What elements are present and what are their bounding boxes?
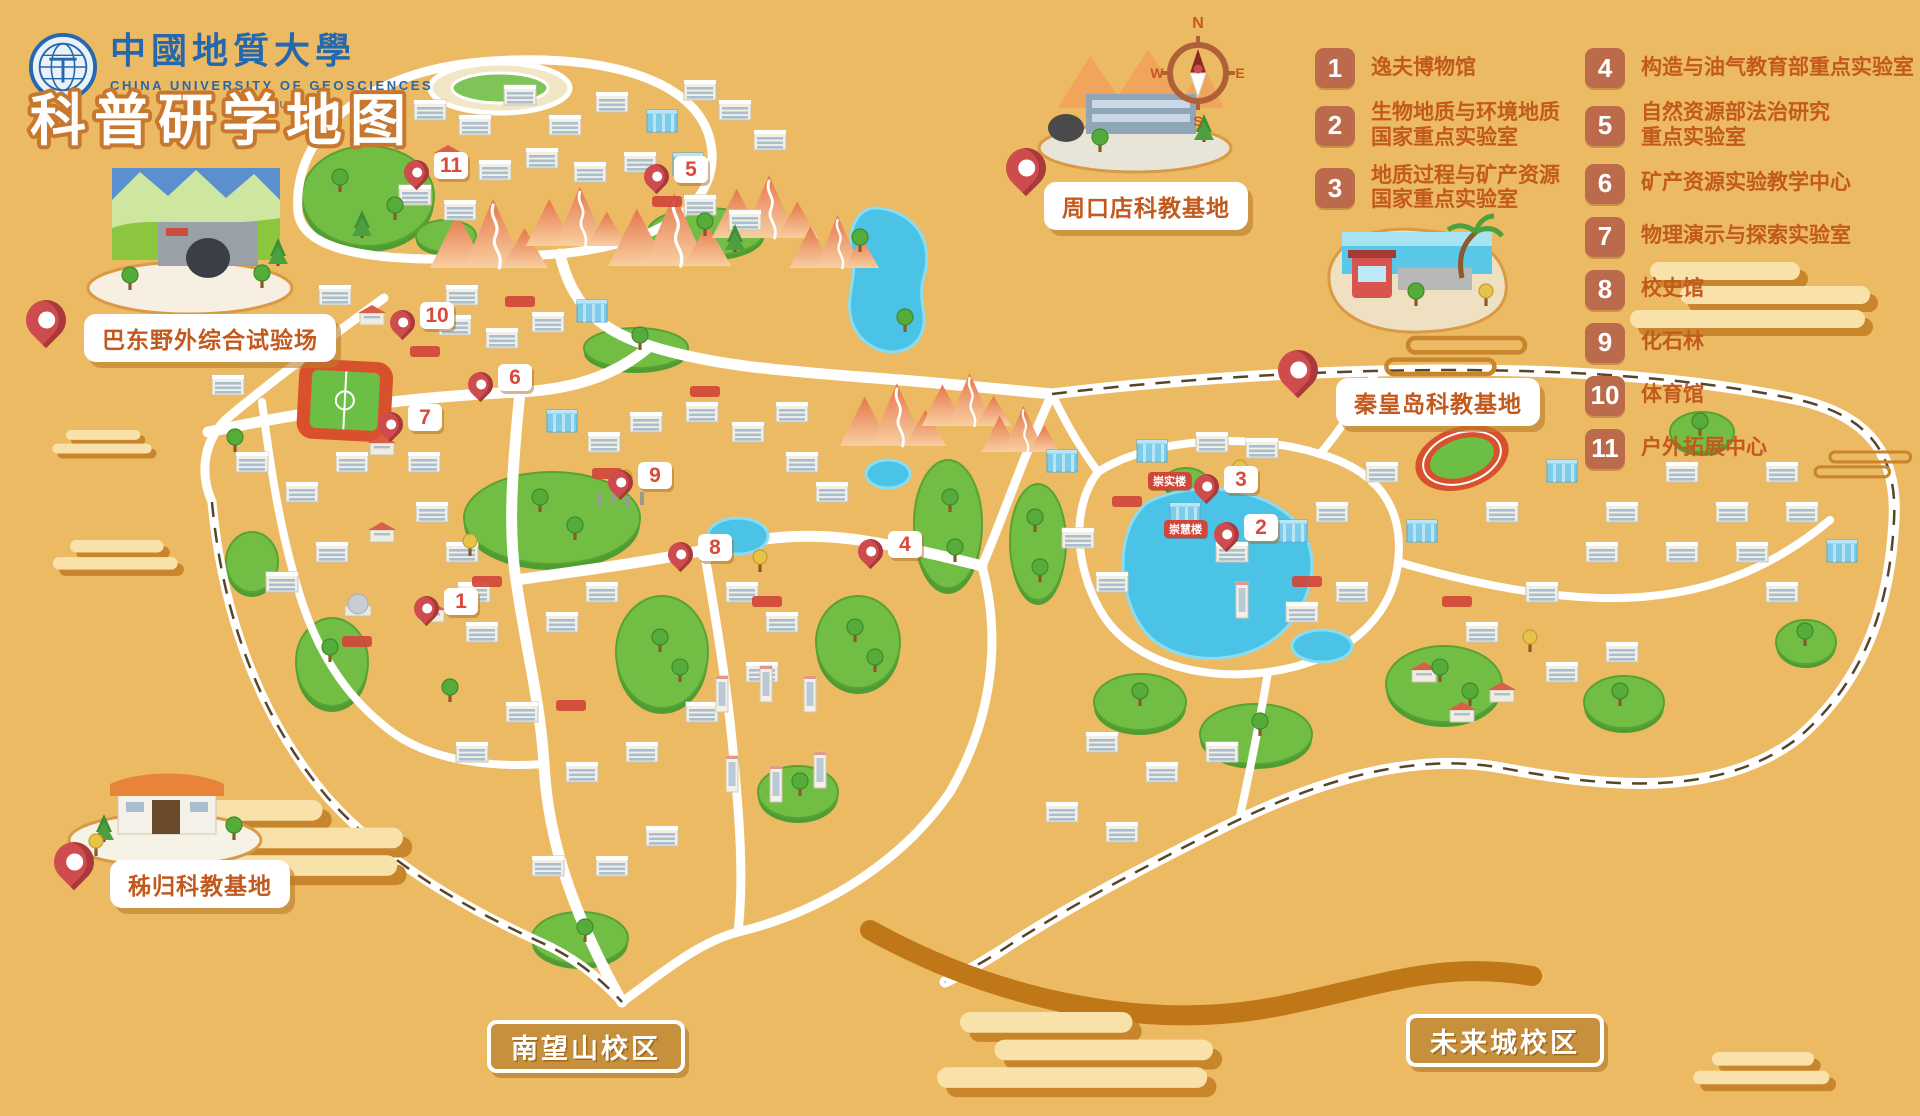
campus-label-nanwangshan[interactable]: 南望山校区 xyxy=(487,1020,685,1073)
marker-number: 8 xyxy=(698,534,732,561)
base-label-badong[interactable]: 巴东野外综合试验场 xyxy=(84,314,336,362)
poster-title: 科普研学地图 xyxy=(20,78,460,168)
legend-number-3: 3 xyxy=(1315,168,1355,208)
map-marker-6[interactable]: 6 xyxy=(468,364,532,402)
map-marker-9[interactable]: 9 xyxy=(608,462,672,500)
marker-pin-icon xyxy=(858,539,884,569)
marker-number: 9 xyxy=(638,462,672,489)
poster-title-text: 科普研学地图 xyxy=(30,89,414,152)
legend-label-9: 化石林 xyxy=(1641,330,1704,355)
map-marker-7[interactable]: 7 xyxy=(378,404,442,442)
zigui-illustration xyxy=(69,774,261,867)
legend-number-2: 2 xyxy=(1315,106,1355,146)
marker-pin-icon xyxy=(404,160,430,190)
legend-label-4: 构造与油气教育部重点实验室 xyxy=(1641,56,1914,81)
pin-icon xyxy=(1189,469,1224,504)
marker-pin-icon xyxy=(414,596,440,626)
pin-icon xyxy=(853,534,888,569)
map-marker-11[interactable]: 11 xyxy=(404,152,468,190)
marker-pin-icon xyxy=(1214,522,1240,552)
bottom-swoosh xyxy=(870,930,1532,1015)
legend-number-8: 8 xyxy=(1585,270,1625,310)
pin-icon xyxy=(385,305,420,340)
marker-number: 10 xyxy=(420,302,454,329)
legend-item-6: 6矿产资源实验教学中心 xyxy=(1585,164,1915,204)
legend-item-2: 2生物地质与环境地质 国家重点实验室 xyxy=(1315,101,1575,151)
compass-rose: N W E S xyxy=(1148,12,1248,130)
badong-illustration xyxy=(88,168,292,314)
marker-number: 6 xyxy=(498,364,532,391)
marker-number: 5 xyxy=(674,156,708,183)
university-name-zh: 中國地質大學 xyxy=(110,22,433,74)
pin-icon xyxy=(373,407,408,442)
legend-label-7: 物理演示与探索实验室 xyxy=(1641,224,1851,249)
legend-label-1: 逸夫博物馆 xyxy=(1371,56,1476,81)
legend-item-7: 7物理演示与探索实验室 xyxy=(1585,217,1915,257)
marker-number: 4 xyxy=(888,531,922,558)
legend-number-10: 10 xyxy=(1585,376,1625,416)
legend-number-9: 9 xyxy=(1585,323,1625,363)
pin-icon xyxy=(603,465,638,500)
pin-icon xyxy=(409,591,444,626)
legend-number-7: 7 xyxy=(1585,217,1625,257)
legend-item-3: 3地质过程与矿产资源 国家重点实验室 xyxy=(1315,164,1575,214)
marker-number: 1 xyxy=(444,588,478,615)
legend-label-3: 地质过程与矿产资源 国家重点实验室 xyxy=(1371,164,1560,214)
compass-s: S xyxy=(1193,113,1202,129)
building-tag-0: 崇实楼 xyxy=(1148,472,1191,490)
map-marker-4[interactable]: 4 xyxy=(858,531,922,569)
legend-number-6: 6 xyxy=(1585,164,1625,204)
legend-label-5: 自然资源部法治研究 重点实验室 xyxy=(1641,101,1830,151)
compass-n: N xyxy=(1192,15,1204,32)
marker-number: 11 xyxy=(434,152,468,179)
legend-label-2: 生物地质与环境地质 国家重点实验室 xyxy=(1371,101,1560,151)
map-marker-3[interactable]: 3 xyxy=(1194,466,1258,504)
marker-pin-icon xyxy=(644,164,670,194)
building-tag-1: 崇慧楼 xyxy=(1164,520,1207,538)
legend-number-11: 11 xyxy=(1585,429,1625,469)
marker-pin-icon xyxy=(378,412,404,442)
marker-pin-icon xyxy=(1194,474,1220,504)
qinhuangdao-illustration xyxy=(1329,216,1506,332)
map-marker-10[interactable]: 10 xyxy=(390,302,454,340)
legend-label-8: 校史馆 xyxy=(1641,277,1704,302)
legend-label-11: 户外拓展中心 xyxy=(1641,436,1767,461)
legend-item-9: 9化石林 xyxy=(1585,323,1915,363)
marker-number: 7 xyxy=(408,404,442,431)
legend-number-1: 1 xyxy=(1315,48,1355,88)
marker-number: 3 xyxy=(1224,466,1258,493)
legend-number-5: 5 xyxy=(1585,106,1625,146)
base-label-zhoukoudian[interactable]: 周口店科教基地 xyxy=(1044,182,1248,230)
legend-item-4: 4构造与油气教育部重点实验室 xyxy=(1585,48,1915,88)
marker-number: 2 xyxy=(1244,514,1278,541)
pin-icon xyxy=(663,537,698,572)
legend-item-8: 8校史馆 xyxy=(1585,270,1915,310)
legend-column-2: 4构造与油气教育部重点实验室5自然资源部法治研究 重点实验室6矿产资源实验教学中… xyxy=(1585,48,1915,482)
stadium-track xyxy=(1407,414,1517,503)
poster-map: 中國地質大學 CHINA UNIVERSITY OF GEOSCIENCES 武… xyxy=(0,0,1920,1116)
campus-label-weilaicheng[interactable]: 未来城校区 xyxy=(1406,1014,1604,1067)
map-marker-1[interactable]: 1 xyxy=(414,588,478,626)
pin-icon xyxy=(1209,517,1244,552)
pin-icon xyxy=(399,155,434,190)
legend-number-4: 4 xyxy=(1585,48,1625,88)
legend-label-6: 矿产资源实验教学中心 xyxy=(1641,171,1851,196)
base-label-qinhuangdao[interactable]: 秦皇岛科教基地 xyxy=(1336,378,1540,426)
map-marker-8[interactable]: 8 xyxy=(668,534,732,572)
legend-item-1: 1逸夫博物馆 xyxy=(1315,48,1575,88)
marker-pin-icon xyxy=(668,542,694,572)
marker-pin-icon xyxy=(468,372,494,402)
legend-column-1: 1逸夫博物馆2生物地质与环境地质 国家重点实验室3地质过程与矿产资源 国家重点实… xyxy=(1315,48,1575,226)
legend-item-10: 10体育馆 xyxy=(1585,376,1915,416)
base-label-zigui[interactable]: 秭归科教基地 xyxy=(110,860,290,908)
map-marker-2[interactable]: 2 xyxy=(1214,514,1278,552)
map-marker-5[interactable]: 5 xyxy=(644,156,708,194)
marker-pin-icon xyxy=(608,470,634,500)
legend-item-11: 11户外拓展中心 xyxy=(1585,429,1915,469)
legend-label-10: 体育馆 xyxy=(1641,383,1704,408)
legend-item-5: 5自然资源部法治研究 重点实验室 xyxy=(1585,101,1915,151)
pin-icon xyxy=(639,159,674,194)
compass-e: E xyxy=(1235,65,1244,81)
marker-pin-icon xyxy=(390,310,416,340)
pin-icon xyxy=(463,367,498,402)
